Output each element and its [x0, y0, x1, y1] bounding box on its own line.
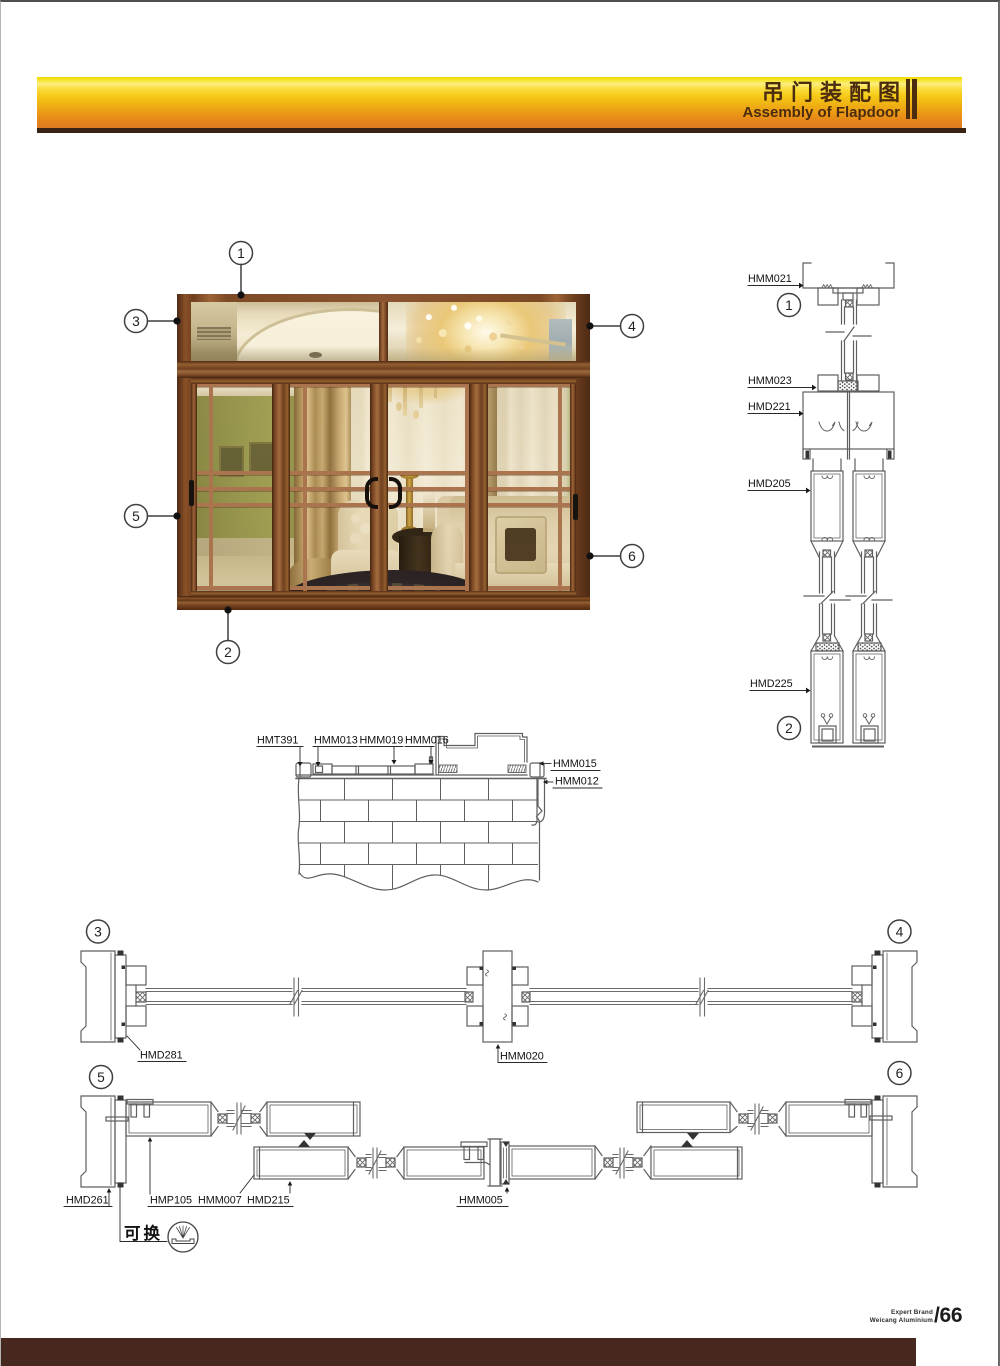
svg-text:2: 2 [224, 645, 232, 660]
svg-text:2: 2 [785, 721, 793, 736]
svg-text:HMM012: HMM012 [555, 776, 599, 788]
svg-text:可换: 可换 [124, 1223, 163, 1243]
svg-text:HMM015: HMM015 [553, 758, 597, 770]
svg-text:HMT391: HMT391 [257, 735, 298, 747]
svg-text:6: 6 [628, 549, 636, 564]
svg-text:HMD225: HMD225 [750, 678, 793, 690]
svg-text:HMM016: HMM016 [405, 735, 449, 747]
svg-text:1: 1 [785, 298, 793, 313]
svg-text:HMD221: HMD221 [748, 401, 791, 413]
svg-text:6: 6 [896, 1066, 904, 1081]
svg-text:HMM020: HMM020 [500, 1051, 544, 1063]
svg-text:4: 4 [896, 925, 904, 940]
svg-text:HMD261: HMD261 [66, 1195, 109, 1207]
svg-text:3: 3 [94, 925, 102, 940]
svg-text:HMM019: HMM019 [360, 735, 404, 747]
svg-text:HMM005: HMM005 [459, 1195, 503, 1207]
svg-text:HMD205: HMD205 [748, 478, 791, 490]
svg-text:HMM023: HMM023 [748, 375, 792, 387]
svg-text:HMM021: HMM021 [748, 273, 792, 285]
svg-text:5: 5 [132, 509, 140, 524]
svg-text:1: 1 [237, 246, 245, 261]
svg-text:3: 3 [132, 314, 140, 329]
svg-text:HMM013: HMM013 [314, 735, 358, 747]
svg-text:HMD215: HMD215 [247, 1195, 290, 1207]
svg-text:HMP105: HMP105 [150, 1195, 192, 1207]
svg-text:5: 5 [97, 1070, 105, 1085]
svg-text:HMM007: HMM007 [198, 1195, 242, 1207]
svg-text:4: 4 [628, 319, 636, 334]
svg-text:HMD281: HMD281 [140, 1050, 183, 1062]
